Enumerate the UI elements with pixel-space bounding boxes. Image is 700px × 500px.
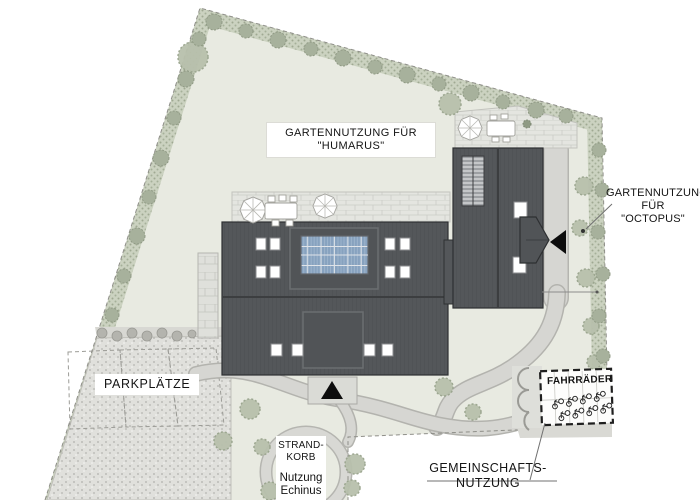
building-humarus — [222, 222, 448, 375]
label-community-use: GEMEINSCHAFTS- NUTZUNG — [413, 461, 563, 491]
west-brick-path — [198, 253, 218, 338]
label-line: GARTENNUTZUNG — [606, 187, 700, 200]
label-line: "OCTOPUS" — [606, 213, 700, 226]
parasol-icon — [240, 197, 266, 223]
label-beach-chair: STRAND- KORB Nutzung Echinus — [276, 436, 326, 500]
site-plan-canvas: GARTENNUTZUNG FÜR "HUMARUS" GARTENNUTZUN… — [0, 0, 700, 500]
pergola-area — [512, 366, 542, 428]
label-line: Nutzung — [276, 472, 326, 486]
label-line: STRAND- — [276, 440, 326, 452]
parasol-icon — [313, 194, 337, 218]
table-icon — [265, 203, 297, 219]
label-line: NUTZUNG — [413, 476, 563, 491]
label-line: KORB — [276, 452, 326, 464]
label-bike-shed: FAHRRÄDER — [547, 374, 611, 388]
label-garden-humarus: GARTENNUTZUNG FÜR "HUMARUS" — [266, 122, 436, 158]
label-line: Echinus — [276, 485, 326, 499]
label-garden-octopus: GARTENNUTZUNG FÜR "OCTOPUS" — [606, 187, 700, 226]
label-line: FÜR — [606, 200, 700, 213]
building-octopus — [453, 148, 549, 308]
label-line: GARTENNUTZUNG FÜR — [267, 127, 435, 140]
label-line: GEMEINSCHAFTS- — [413, 461, 563, 476]
site-plan-drawing — [0, 0, 700, 500]
roof-dormer — [303, 312, 363, 368]
label-line: "HUMARUS" — [267, 140, 435, 153]
potted-plant-icon — [523, 120, 531, 128]
label-line: FAHRRÄDER — [547, 374, 611, 388]
parasol-icon — [458, 116, 482, 140]
label-line: PARKPLÄTZE — [104, 377, 190, 392]
parking-area — [47, 327, 231, 500]
label-parking: PARKPLÄTZE — [95, 374, 199, 395]
table-icon — [487, 121, 515, 136]
